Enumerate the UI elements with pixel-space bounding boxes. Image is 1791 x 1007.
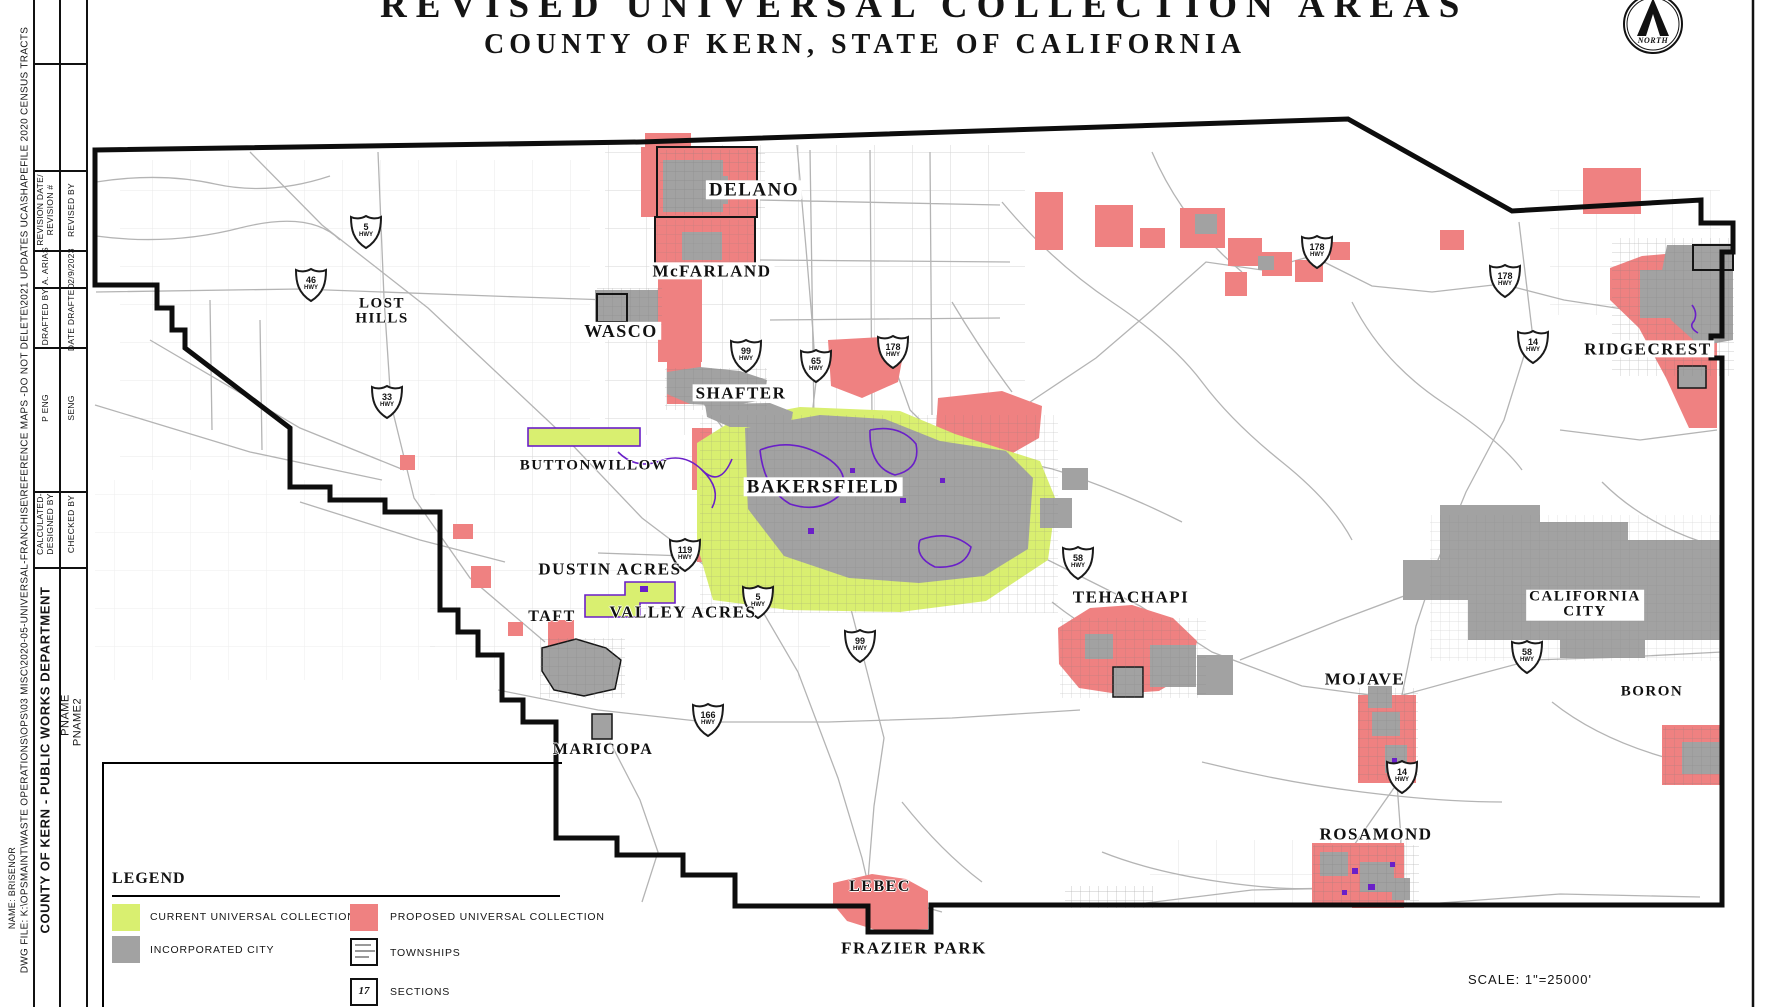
north-arrow-icon: NORTH — [1621, 0, 1685, 56]
bottom-scrollbar[interactable] — [93, 1002, 1133, 1007]
city-label-lebec: LEBEC — [849, 879, 911, 895]
department-title: COUNTY OF KERN - PUBLIC WORKS DEPARTMENT — [39, 586, 54, 933]
highway-shield-14: 14HWY — [1516, 329, 1550, 365]
city-label-mcfarland: McFARLAND — [650, 262, 775, 279]
titleblock-vline-3 — [86, 0, 88, 1007]
legend-heading: LEGEND — [112, 870, 186, 888]
highway-shield-5: 5HWY — [349, 214, 383, 250]
titleblock-hline-1 — [33, 63, 87, 65]
highway-shield-58: 58HWY — [1061, 545, 1095, 581]
sections-number: 17 — [352, 985, 376, 997]
titleblock-cell-0-left: REVISION DATE/ REVISION # — [36, 174, 56, 246]
legend: LEGEND CURRENT UNIVERSAL COLLECTION INCO… — [102, 762, 562, 1007]
titleblock-cell-0-right: REVISED BY — [67, 183, 77, 237]
legend-label-sections: SECTIONS — [390, 986, 450, 998]
titleblock-hline-5 — [33, 347, 87, 349]
titleblock-cell-3-right: SENG — [67, 395, 77, 420]
titleblock-cell-1-right: 2/9/2023 — [67, 248, 77, 284]
highway-shield-46: 46HWY — [294, 267, 328, 303]
highway-shield-178: 178HWY — [1488, 263, 1522, 299]
titleblock-cell-3-left: P ENG — [41, 394, 51, 422]
city-label-valley-acres: VALLEY ACRES — [610, 603, 757, 620]
townships-icon — [350, 938, 378, 966]
map-title: REVISED UNIVERSAL COLLECTION AREAS COUNT… — [380, 0, 1350, 61]
legend-rule — [112, 895, 560, 897]
drawer-name: NAME: BRISENOR — [7, 847, 17, 929]
highway-shield-65: 65HWY — [799, 348, 833, 384]
legend-label-townships: TOWNSHIPS — [390, 947, 461, 959]
highway-shield-178: 178HWY — [1300, 234, 1334, 270]
city-label-delano: DELANO — [706, 180, 802, 199]
highway-shield-99: 99HWY — [729, 338, 763, 374]
dwg-file-path: DWG FILE: K:\OPSMAINT\WASTE OPERATIONS\O… — [19, 27, 31, 973]
highway-shield-58: 58HWY — [1510, 639, 1544, 675]
highway-shield-166: 166HWY — [691, 702, 725, 738]
legend-label-current: CURRENT UNIVERSAL COLLECTION — [150, 911, 356, 923]
city-label-boron: BORON — [1621, 684, 1684, 699]
city-label-wasco: WASCO — [581, 322, 661, 340]
map-sheet: REVISED UNIVERSAL COLLECTION AREAS COUNT… — [0, 0, 1791, 1007]
titleblock-cell-4-right: CHECKED BY — [67, 495, 77, 553]
city-label-mojave: MOJAVE — [1325, 670, 1405, 687]
titleblock-vline-2 — [59, 0, 61, 1007]
legend-swatch-incorporated — [112, 936, 140, 963]
project-name: PNAME — [60, 694, 73, 736]
city-label-dustin-acres: DUSTIN ACRES — [538, 560, 681, 577]
city-label-taft: TAFT — [528, 609, 575, 625]
legend-swatch-proposed — [350, 904, 378, 931]
city-label-buttonwillow: BUTTONWILLOW — [520, 458, 669, 473]
city-label-lost-hills: LOSTHILLS — [355, 297, 408, 328]
titleblock-cell-2-right: DATE DRAFTED — [67, 283, 77, 351]
legend-label-incorporated: INCORPORATED CITY — [150, 944, 274, 956]
scale-text: SCALE: 1"=25000' — [1468, 972, 1592, 987]
city-label-california-city: CALIFORNIACITY — [1526, 590, 1644, 621]
legend-label-proposed: PROPOSED UNIVERSAL COLLECTION — [390, 911, 605, 923]
title-line1: REVISED UNIVERSAL COLLECTION AREAS — [380, 0, 1350, 27]
legend-swatch-current — [112, 904, 140, 931]
city-label-shafter: SHAFTER — [693, 384, 790, 401]
city-label-ridgecrest: RIDGECREST — [1581, 340, 1714, 357]
north-label: NORTH — [1621, 36, 1685, 45]
highway-shield-14: 14HWY — [1385, 759, 1419, 795]
city-label-frazier-park: FRAZIER PARK — [841, 939, 987, 956]
highway-shield-99: 99HWY — [843, 628, 877, 664]
titleblock-hline-2 — [33, 170, 87, 172]
city-label-tehachapi: TEHACHAPI — [1073, 588, 1189, 605]
titleblock-cell-4-left: CALCULATED- DESIGNED BY — [36, 493, 56, 555]
city-label-rosamond: ROSAMOND — [1319, 825, 1432, 842]
titleblock-hline-7 — [33, 567, 87, 569]
titleblock-cell-2-left: DRAFTED BY — [41, 289, 51, 346]
titleblock-cell-1-left: A. ARIAS — [41, 247, 51, 285]
project-name-2: PNAME2 — [72, 698, 85, 746]
city-label-maricopa: MARICOPA — [553, 742, 654, 758]
title-line2: COUNTY OF KERN, STATE OF CALIFORNIA — [380, 29, 1350, 61]
city-label-bakersfield: BAKERSFIELD — [744, 477, 903, 496]
highway-shield-33: 33HWY — [370, 384, 404, 420]
highway-shield-178: 178HWY — [876, 334, 910, 370]
